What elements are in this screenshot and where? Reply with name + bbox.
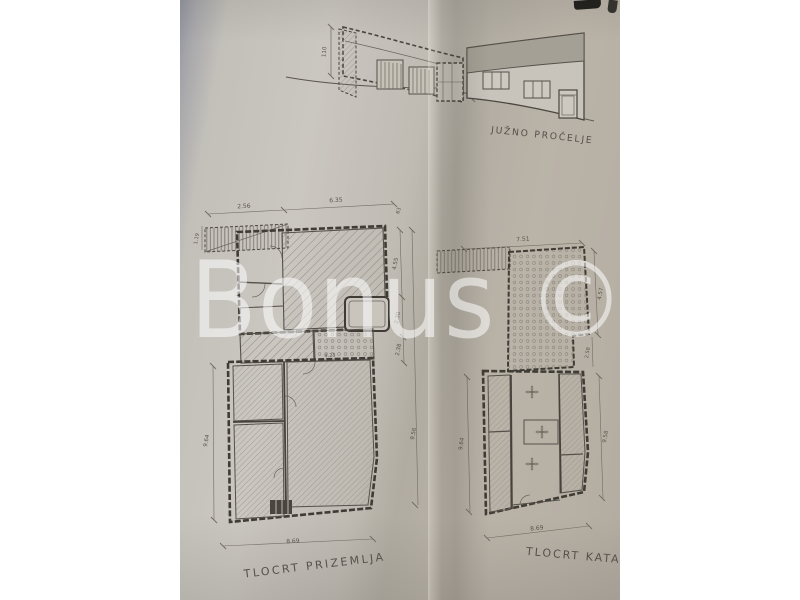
interior-wall — [284, 362, 286, 507]
roof-terrace-dotted — [508, 247, 589, 371]
svg-text:2.30: 2.30 — [394, 311, 402, 325]
svg-text:6.35: 6.35 — [329, 197, 343, 205]
entry-rooms — [238, 246, 283, 308]
svg-text:4.23: 4.23 — [324, 353, 335, 360]
ground-floor-plan: 2.56 6.35 63 1.19 9.64 4.55 2.30 2.38 9.… — [193, 197, 418, 581]
ground-plan-label: TLOCRT PRIZEMLJA — [242, 550, 386, 580]
hatched-wall-strip — [339, 29, 356, 97]
svg-text:2.58: 2.58 — [584, 347, 592, 359]
paper-fold-shadow — [428, 0, 490, 600]
svg-text:7.51: 7.51 — [516, 236, 530, 244]
interior-wall — [511, 375, 512, 509]
elevation-label: JUŽNO PROČELJE — [490, 124, 594, 147]
room-hatched — [488, 375, 511, 512]
svg-text:110: 110 — [322, 46, 329, 57]
elevation-window — [377, 60, 403, 89]
middle-room-hatched — [240, 331, 314, 363]
photo-of-blueprint: 110 240 — [180, 0, 620, 600]
svg-text:8.69: 8.69 — [286, 538, 300, 546]
svg-text:8.69: 8.69 — [530, 524, 544, 532]
room-hatched — [559, 374, 585, 493]
room-hatched — [287, 360, 374, 507]
interior-wall — [512, 500, 560, 505]
upper-plan-label: TLOCRT KATA — [524, 545, 620, 566]
svg-text:9.64: 9.64 — [203, 434, 211, 448]
svg-text:4.57: 4.57 — [597, 287, 605, 301]
interior-wall — [233, 421, 284, 422]
truss-flower-symbols — [526, 386, 548, 470]
svg-text:63: 63 — [395, 207, 402, 215]
svg-text:1.19: 1.19 — [193, 233, 201, 245]
elevation-door — [559, 90, 577, 118]
photo-page: 110 240 — [0, 0, 800, 600]
svg-text:2.38: 2.38 — [395, 343, 403, 357]
side-terrace — [345, 297, 389, 331]
svg-text:9.58: 9.58 — [602, 430, 610, 444]
stove-block — [270, 500, 292, 514]
blueprint-drawing: 110 240 — [180, 0, 620, 600]
svg-text:9.56: 9.56 — [410, 427, 418, 441]
svg-text:4.55: 4.55 — [392, 257, 400, 271]
elevation-window — [524, 81, 550, 98]
dim-elevation-height: 110 — [322, 24, 334, 79]
room-hatched — [233, 364, 283, 421]
middle-room-dotted — [314, 329, 374, 361]
svg-text:2.56: 2.56 — [237, 203, 251, 211]
